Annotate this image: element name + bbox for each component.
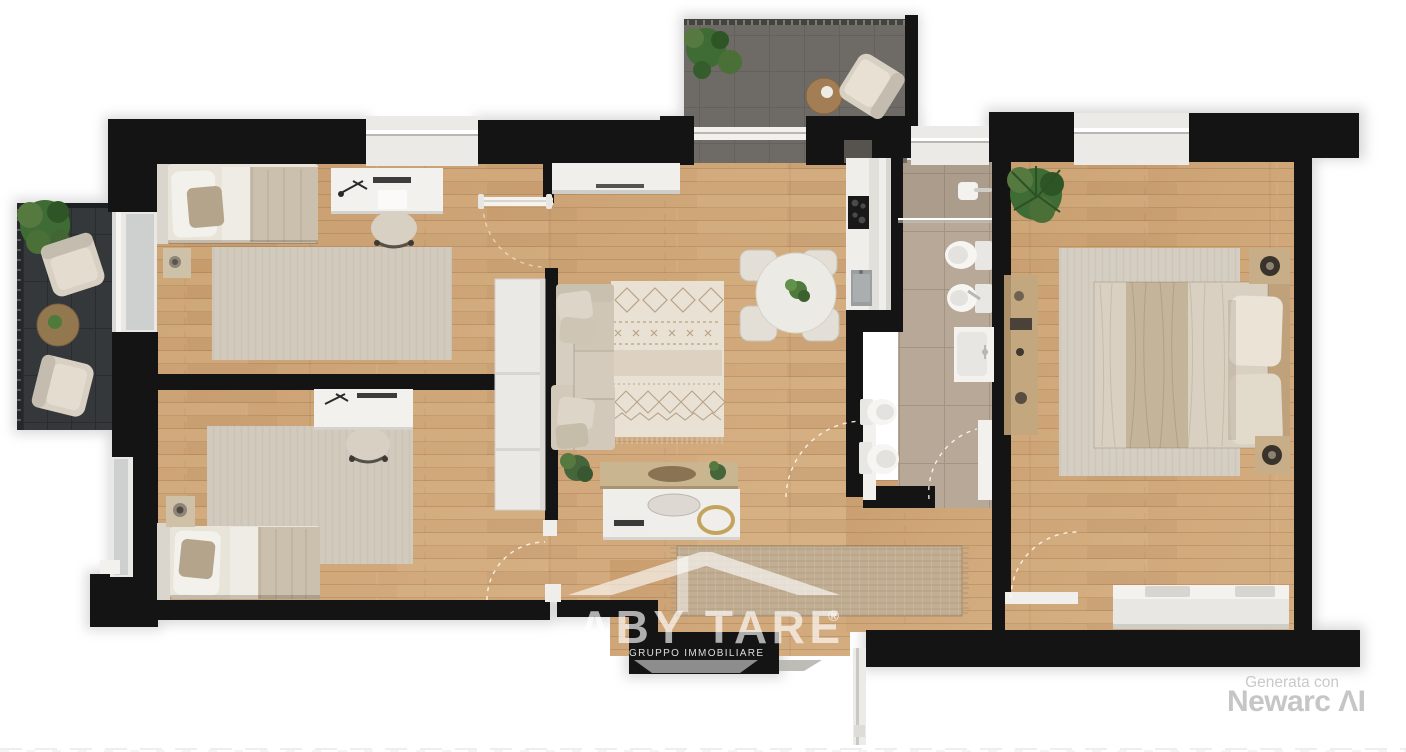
svg-text:ABY TARE: ABY TARE [578,601,840,653]
svg-text:Newarc ΛI: Newarc ΛI [1227,685,1366,718]
svg-text:®: ® [828,608,839,625]
svg-text:GRUPPO IMMOBILIARE: GRUPPO IMMOBILIARE [629,648,767,659]
